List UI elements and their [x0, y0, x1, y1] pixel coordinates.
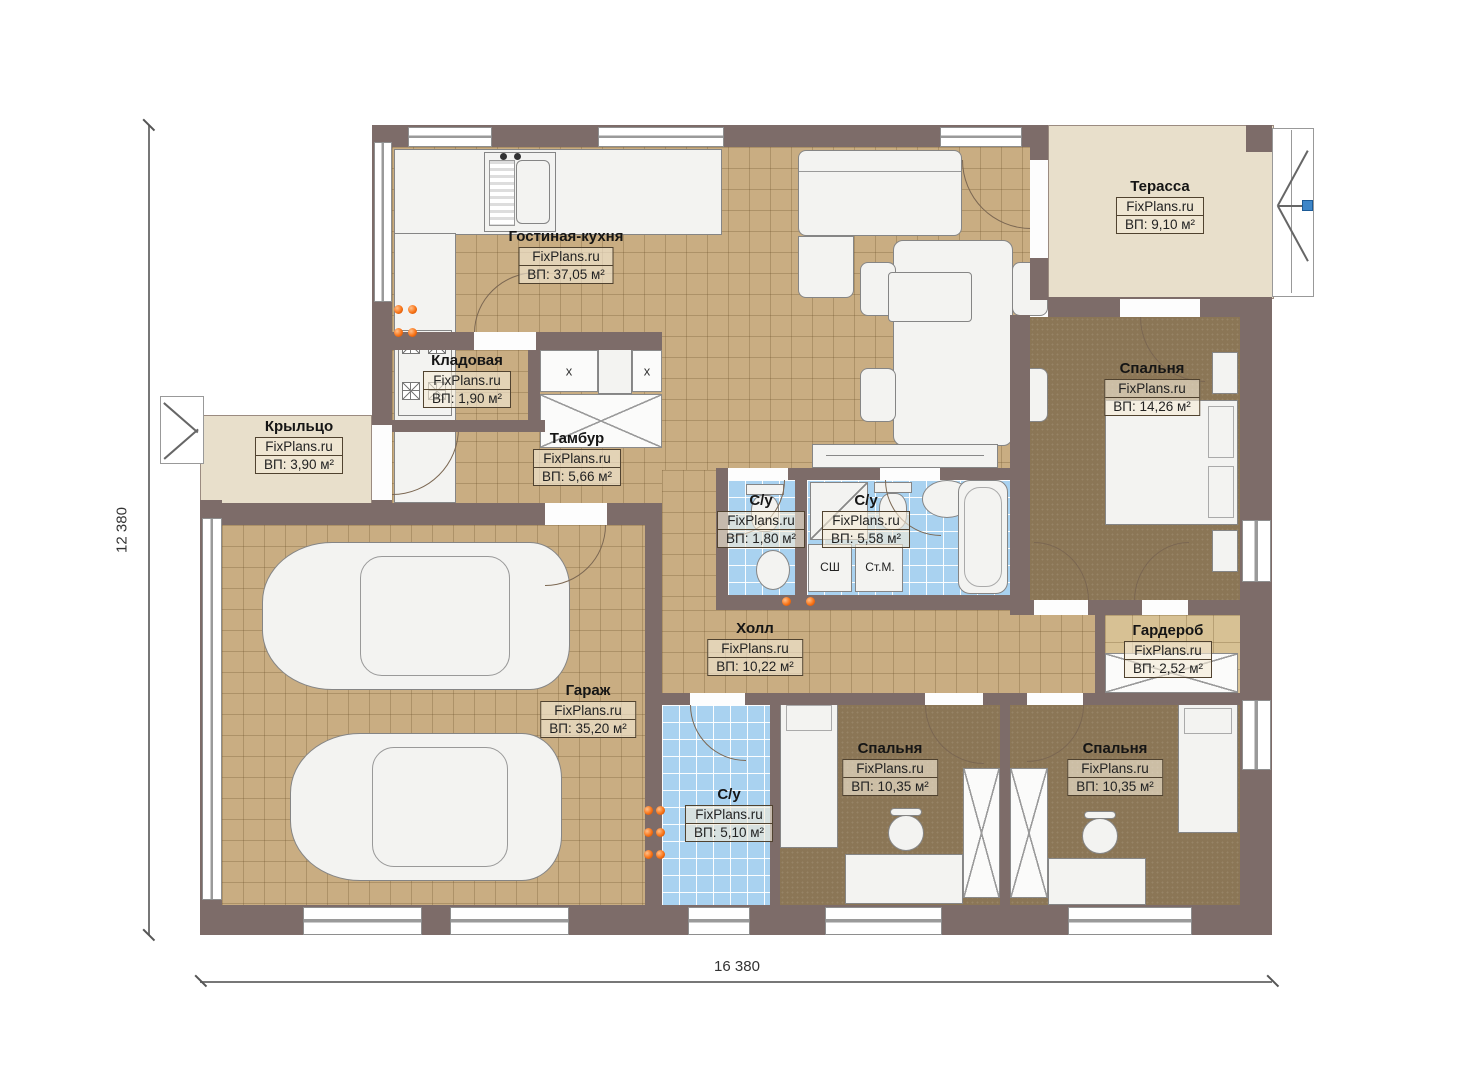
wall-bedroom-master-left — [1010, 315, 1030, 615]
wardrobe-bedroom-2 — [1010, 768, 1048, 898]
room-label-bedroom-2: Спальня FixPlans.ru ВП: 10,35 м² — [1067, 740, 1163, 796]
office-chair-back-bedroom-2 — [1084, 811, 1116, 819]
door-opening-entry — [372, 425, 392, 500]
wall-storage-right — [528, 350, 540, 420]
room-label-wardrobe: Гардероб FixPlans.ru ВП: 2,52 м² — [1124, 622, 1212, 678]
window-top-2 — [598, 127, 724, 147]
nightstand-master-top — [1212, 352, 1238, 394]
window-right-bedroom2 — [1242, 700, 1271, 770]
terrace-steps — [1272, 128, 1314, 297]
room-name-living: Гостиная-кухня — [509, 228, 624, 245]
room-area-hall: ВП: 10,22 м² — [708, 658, 802, 675]
window-right-master — [1242, 520, 1271, 582]
desk-bedroom-1 — [845, 854, 963, 904]
wall-bedroom1-bedroom2 — [1000, 695, 1010, 905]
room-name-bedroom-master: Спальня — [1120, 360, 1185, 377]
room-label-vestibule: Тамбур FixPlans.ru ВП: 5,66 м² — [533, 430, 621, 486]
sofa-chaise — [798, 236, 854, 298]
office-chair-back-bedroom-1 — [890, 808, 922, 816]
window-garage-2 — [450, 907, 569, 935]
terrace-steps-arrow-stem — [1278, 205, 1304, 207]
radiator-dot-wc-2 — [656, 806, 665, 815]
coffee-table — [888, 272, 972, 322]
bed-master-pillow-2 — [1208, 466, 1234, 518]
room-name-wc-big: С/у — [854, 492, 877, 509]
watermark: FixPlans.ru — [708, 640, 802, 658]
door-opening-storage — [474, 332, 536, 350]
watermark: FixPlans.ru — [823, 512, 909, 530]
room-area-bedroom-master: ВП: 14,26 м² — [1105, 398, 1199, 415]
dimension-line-left — [148, 125, 150, 935]
room-area-bedroom-2: ВП: 10,35 м² — [1068, 778, 1162, 795]
bed-master-pillow — [1208, 406, 1234, 458]
car-2-cabin — [372, 747, 508, 867]
car-1-cabin — [360, 556, 510, 676]
sink-drainboard — [489, 160, 515, 226]
watermark: FixPlans.ru — [843, 760, 937, 778]
room-label-storage: Кладовая FixPlans.ru ВП: 1,90 м² — [423, 352, 511, 408]
room-label-living: Гостиная-кухня FixPlans.ru ВП: 37,05 м² — [509, 228, 624, 284]
dimension-label-left: 12 380 — [114, 507, 131, 553]
bed-bedroom-2-pillow — [1184, 708, 1232, 734]
closet-x-left-mark: x — [566, 364, 573, 379]
room-name-terrace: Терасса — [1130, 178, 1189, 195]
room-area-garage: ВП: 35,20 м² — [541, 720, 635, 737]
watermark: FixPlans.ru — [1125, 642, 1211, 660]
wall-right — [1240, 297, 1272, 935]
watermark: FixPlans.ru — [534, 450, 620, 468]
radiator-dot-bath-2 — [806, 597, 815, 606]
window-bedroom-1 — [825, 907, 942, 935]
closet-x-right-mark: x — [644, 364, 651, 379]
room-label-wc-big: С/у FixPlans.ru ВП: 5,58 м² — [822, 492, 910, 548]
door-opening-wc-big — [880, 468, 940, 480]
radiator-dot-wc-4 — [656, 828, 665, 837]
watermark: FixPlans.ru — [1117, 198, 1203, 216]
door-opening-master-wardrobe — [1142, 600, 1188, 615]
window-top-3 — [940, 127, 1022, 147]
hall-console — [812, 444, 998, 468]
sink-faucet-dot-2 — [514, 153, 521, 160]
dining-chair-2 — [860, 368, 896, 422]
sink-faucet-dot-1 — [500, 153, 507, 160]
radiator-dot-living-4 — [408, 328, 417, 337]
desk-bedroom-2 — [1048, 858, 1146, 905]
room-name-porch: Крыльцо — [265, 418, 333, 435]
door-opening-master-hall — [1034, 600, 1088, 615]
dryer-label: СШ — [820, 560, 840, 574]
room-area-porch: ВП: 3,90 м² — [256, 456, 342, 473]
room-label-wc-small: С/у FixPlans.ru ВП: 1,80 м² — [717, 492, 805, 548]
radiator-dot-living-1 — [394, 305, 403, 314]
door-opening-bedroom-2 — [1027, 693, 1083, 705]
room-label-terrace: Терасса FixPlans.ru ВП: 9,10 м² — [1116, 178, 1204, 234]
door-opening-wc-small — [728, 468, 788, 480]
window-living-left — [374, 142, 392, 302]
watermark: FixPlans.ru — [256, 438, 342, 456]
room-label-porch: Крыльцо FixPlans.ru ВП: 3,90 м² — [255, 418, 343, 474]
wall-bathrooms-bottom — [716, 595, 1010, 610]
window-top-1 — [408, 127, 492, 147]
room-area-terrace: ВП: 9,10 м² — [1117, 216, 1203, 233]
radiator-dot-living-3 — [394, 328, 403, 337]
room-area-wc-small: ВП: 1,80 м² — [718, 530, 804, 547]
watermark: FixPlans.ru — [718, 512, 804, 530]
stove-burner-3 — [402, 382, 420, 400]
sofa — [798, 150, 962, 236]
watermark: FixPlans.ru — [1105, 380, 1199, 398]
radiator-dot-wc-6 — [656, 850, 665, 859]
office-chair-bedroom-2 — [1082, 818, 1118, 854]
office-chair-bedroom-1 — [888, 815, 924, 851]
room-name-bedroom-1: Спальня — [858, 740, 923, 757]
room-label-garage: Гараж FixPlans.ru ВП: 35,20 м² — [540, 682, 636, 738]
radiator-dot-living-2 — [408, 305, 417, 314]
terrace-steps-divider — [1291, 130, 1292, 293]
room-name-storage: Кладовая — [431, 352, 503, 369]
room-area-bedroom-1: ВП: 10,35 м² — [843, 778, 937, 795]
room-area-wc-bottom: ВП: 5,10 м² — [686, 824, 772, 841]
room-name-wc-bottom: С/у — [717, 786, 740, 803]
watermark: FixPlans.ru — [424, 372, 510, 390]
door-opening-master-terrace — [1120, 299, 1200, 317]
wall-vestibule-top — [392, 420, 545, 432]
radiator-dot-bath-1 — [782, 597, 791, 606]
watermark: FixPlans.ru — [1068, 760, 1162, 778]
room-area-living: ВП: 37,05 м² — [519, 266, 613, 283]
garage-gate — [202, 518, 222, 900]
floor-plan-canvas: x x СШ Ст.М. — [0, 0, 1474, 1080]
door-opening-wc-bottom — [690, 693, 745, 705]
sink-bowl — [516, 160, 550, 224]
dimension-label-bottom: 16 380 — [714, 958, 760, 975]
terrace-column — [1246, 125, 1272, 152]
watermark: FixPlans.ru — [686, 806, 772, 824]
wall-garage-right — [645, 525, 662, 905]
radiator-dot-wc-1 — [644, 806, 653, 815]
room-name-hall: Холл — [736, 620, 774, 637]
window-garage-1 — [303, 907, 422, 935]
washer-label: Ст.М. — [865, 560, 895, 574]
bed-bedroom-1-pillow — [786, 705, 832, 731]
closet-middle — [598, 348, 632, 394]
room-label-bedroom-master: Спальня FixPlans.ru ВП: 14,26 м² — [1104, 360, 1200, 416]
room-name-vestibule: Тамбур — [550, 430, 604, 447]
room-area-wardrobe: ВП: 2,52 м² — [1125, 660, 1211, 677]
radiator-dot-wc-5 — [644, 850, 653, 859]
watermark: FixPlans.ru — [519, 248, 613, 266]
washbasin-wc-small — [756, 550, 790, 590]
room-name-wc-small: С/у — [749, 492, 772, 509]
wall-hall-wardrobe — [1095, 610, 1105, 695]
hall-corridor-left-floor — [662, 470, 716, 610]
door-opening-terrace — [1030, 160, 1048, 258]
room-name-wardrobe: Гардероб — [1133, 622, 1204, 639]
nightstand-master-bottom — [1212, 530, 1238, 572]
room-area-wc-big: ВП: 5,58 м² — [823, 530, 909, 547]
dimension-line-bottom — [200, 981, 1272, 983]
room-area-vestibule: ВП: 5,66 м² — [534, 468, 620, 485]
wardrobe-bedroom-1 — [963, 768, 1000, 898]
bathtub-inner — [964, 487, 1002, 587]
room-label-bedroom-1: Спальня FixPlans.ru ВП: 10,35 м² — [842, 740, 938, 796]
room-name-garage: Гараж — [566, 682, 611, 699]
kitchen-counter-top — [394, 149, 722, 235]
door-opening-garage — [545, 503, 607, 525]
door-opening-bedroom-1 — [925, 693, 983, 705]
window-bedroom-2 — [1068, 907, 1192, 935]
room-label-wc-bottom: С/у FixPlans.ru ВП: 5,10 м² — [685, 786, 773, 842]
window-wc-bottom — [688, 907, 750, 935]
watermark: FixPlans.ru — [541, 702, 635, 720]
room-area-storage: ВП: 1,90 м² — [424, 390, 510, 407]
dining-table — [893, 240, 1013, 446]
room-name-bedroom-2: Спальня — [1083, 740, 1148, 757]
selection-handle[interactable] — [1302, 200, 1313, 211]
radiator-dot-wc-3 — [644, 828, 653, 837]
room-label-hall: Холл FixPlans.ru ВП: 10,22 м² — [707, 620, 803, 676]
